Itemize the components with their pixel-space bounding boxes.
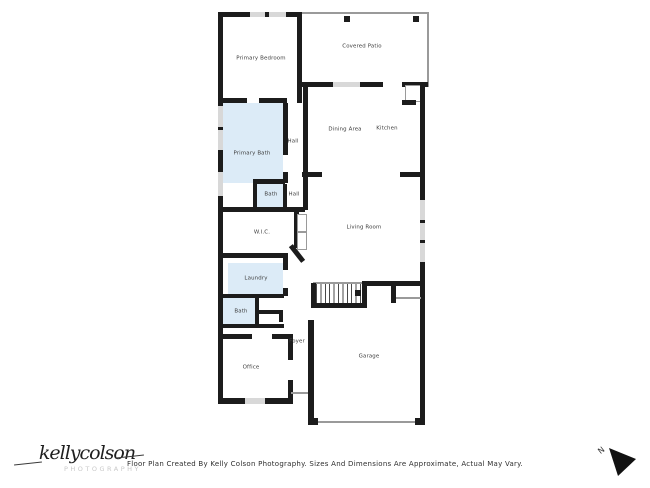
north-arrow-icon: N <box>596 440 640 482</box>
wall-segment <box>222 334 252 339</box>
room-label-bath-upper: Bath <box>264 191 277 197</box>
garage-door-line <box>318 421 415 423</box>
wall-segment <box>311 303 367 308</box>
wall-segment <box>218 196 223 404</box>
window <box>218 130 223 150</box>
window <box>218 172 223 196</box>
window <box>420 243 425 262</box>
door-jamb <box>297 214 307 232</box>
wall-segment <box>303 85 308 210</box>
wall-segment <box>218 398 245 404</box>
wall-segment <box>420 85 425 200</box>
north-arrow-label: N <box>596 445 606 456</box>
wall-segment <box>218 207 305 212</box>
wall-segment <box>400 172 425 177</box>
wall-segment <box>311 283 316 303</box>
door-jamb <box>297 232 307 250</box>
wall-segment <box>283 184 287 207</box>
floor-plan: Primary Bedroom Covered Patio Primary Ba… <box>0 0 650 488</box>
room-label-laundry: Laundry <box>244 275 267 281</box>
wall-segment <box>222 253 288 258</box>
wall-segment <box>218 12 223 106</box>
wall-segment <box>279 310 283 322</box>
room-label-covered-patio: Covered Patio <box>342 43 381 49</box>
photographer-logo: kellycolson PHOTOGRAPHY <box>14 438 144 482</box>
wall-segment <box>253 179 285 184</box>
wall-segment <box>218 98 247 103</box>
wall-segment <box>265 398 293 404</box>
wall-segment <box>302 172 322 177</box>
room-label-hall-upper: Hall <box>288 138 299 144</box>
room-label-foyer: Foyer <box>289 338 305 344</box>
patio-post <box>344 16 350 22</box>
window-mullion <box>265 12 269 17</box>
wall-segment <box>283 103 288 155</box>
room-label-bath-lower: Bath <box>234 308 247 314</box>
room-label-primary-bath: Primary Bath <box>233 150 270 156</box>
room-label-living-room: Living Room <box>347 224 382 230</box>
wall-segment <box>391 286 396 303</box>
wall-segment <box>218 12 250 17</box>
room-label-primary-bedroom: Primary Bedroom <box>236 55 285 61</box>
room-label-kitchen: Kitchen <box>376 125 397 131</box>
wall-segment <box>283 258 288 270</box>
wall-segment <box>360 82 383 87</box>
logo-subtitle-text: PHOTOGRAPHY <box>64 465 141 473</box>
wall-segment <box>415 418 425 425</box>
wall-segment <box>253 179 257 207</box>
wall-segment <box>402 100 416 105</box>
room-label-wic: W.I.C. <box>254 229 270 235</box>
wall-segment <box>308 320 314 418</box>
window <box>420 223 425 240</box>
room-label-hall-lower: Hall <box>289 191 300 197</box>
north-arrow: N <box>596 440 640 482</box>
patio-edge <box>427 12 429 87</box>
wall-segment <box>308 418 318 425</box>
wall-segment <box>420 262 425 425</box>
wall-segment <box>222 324 284 328</box>
patio-post <box>413 16 419 22</box>
window <box>245 398 265 404</box>
window <box>333 82 360 87</box>
logo-script-text: kellycolson <box>30 442 144 464</box>
wall-segment <box>222 294 284 298</box>
wall-segment <box>302 82 333 87</box>
wall-segment <box>218 150 223 172</box>
window <box>218 106 223 127</box>
room-label-dining-area: Dining Area <box>328 126 361 132</box>
room-label-garage: Garage <box>359 353 380 359</box>
stair-marker <box>355 290 361 296</box>
wall-segment <box>297 12 302 103</box>
window <box>420 200 425 220</box>
wall-segment <box>259 310 281 314</box>
room-label-office: Office <box>243 364 260 370</box>
patio-edge <box>302 12 428 14</box>
closet-shelf-line <box>396 297 421 299</box>
room-fill-primary-bath <box>223 103 283 183</box>
